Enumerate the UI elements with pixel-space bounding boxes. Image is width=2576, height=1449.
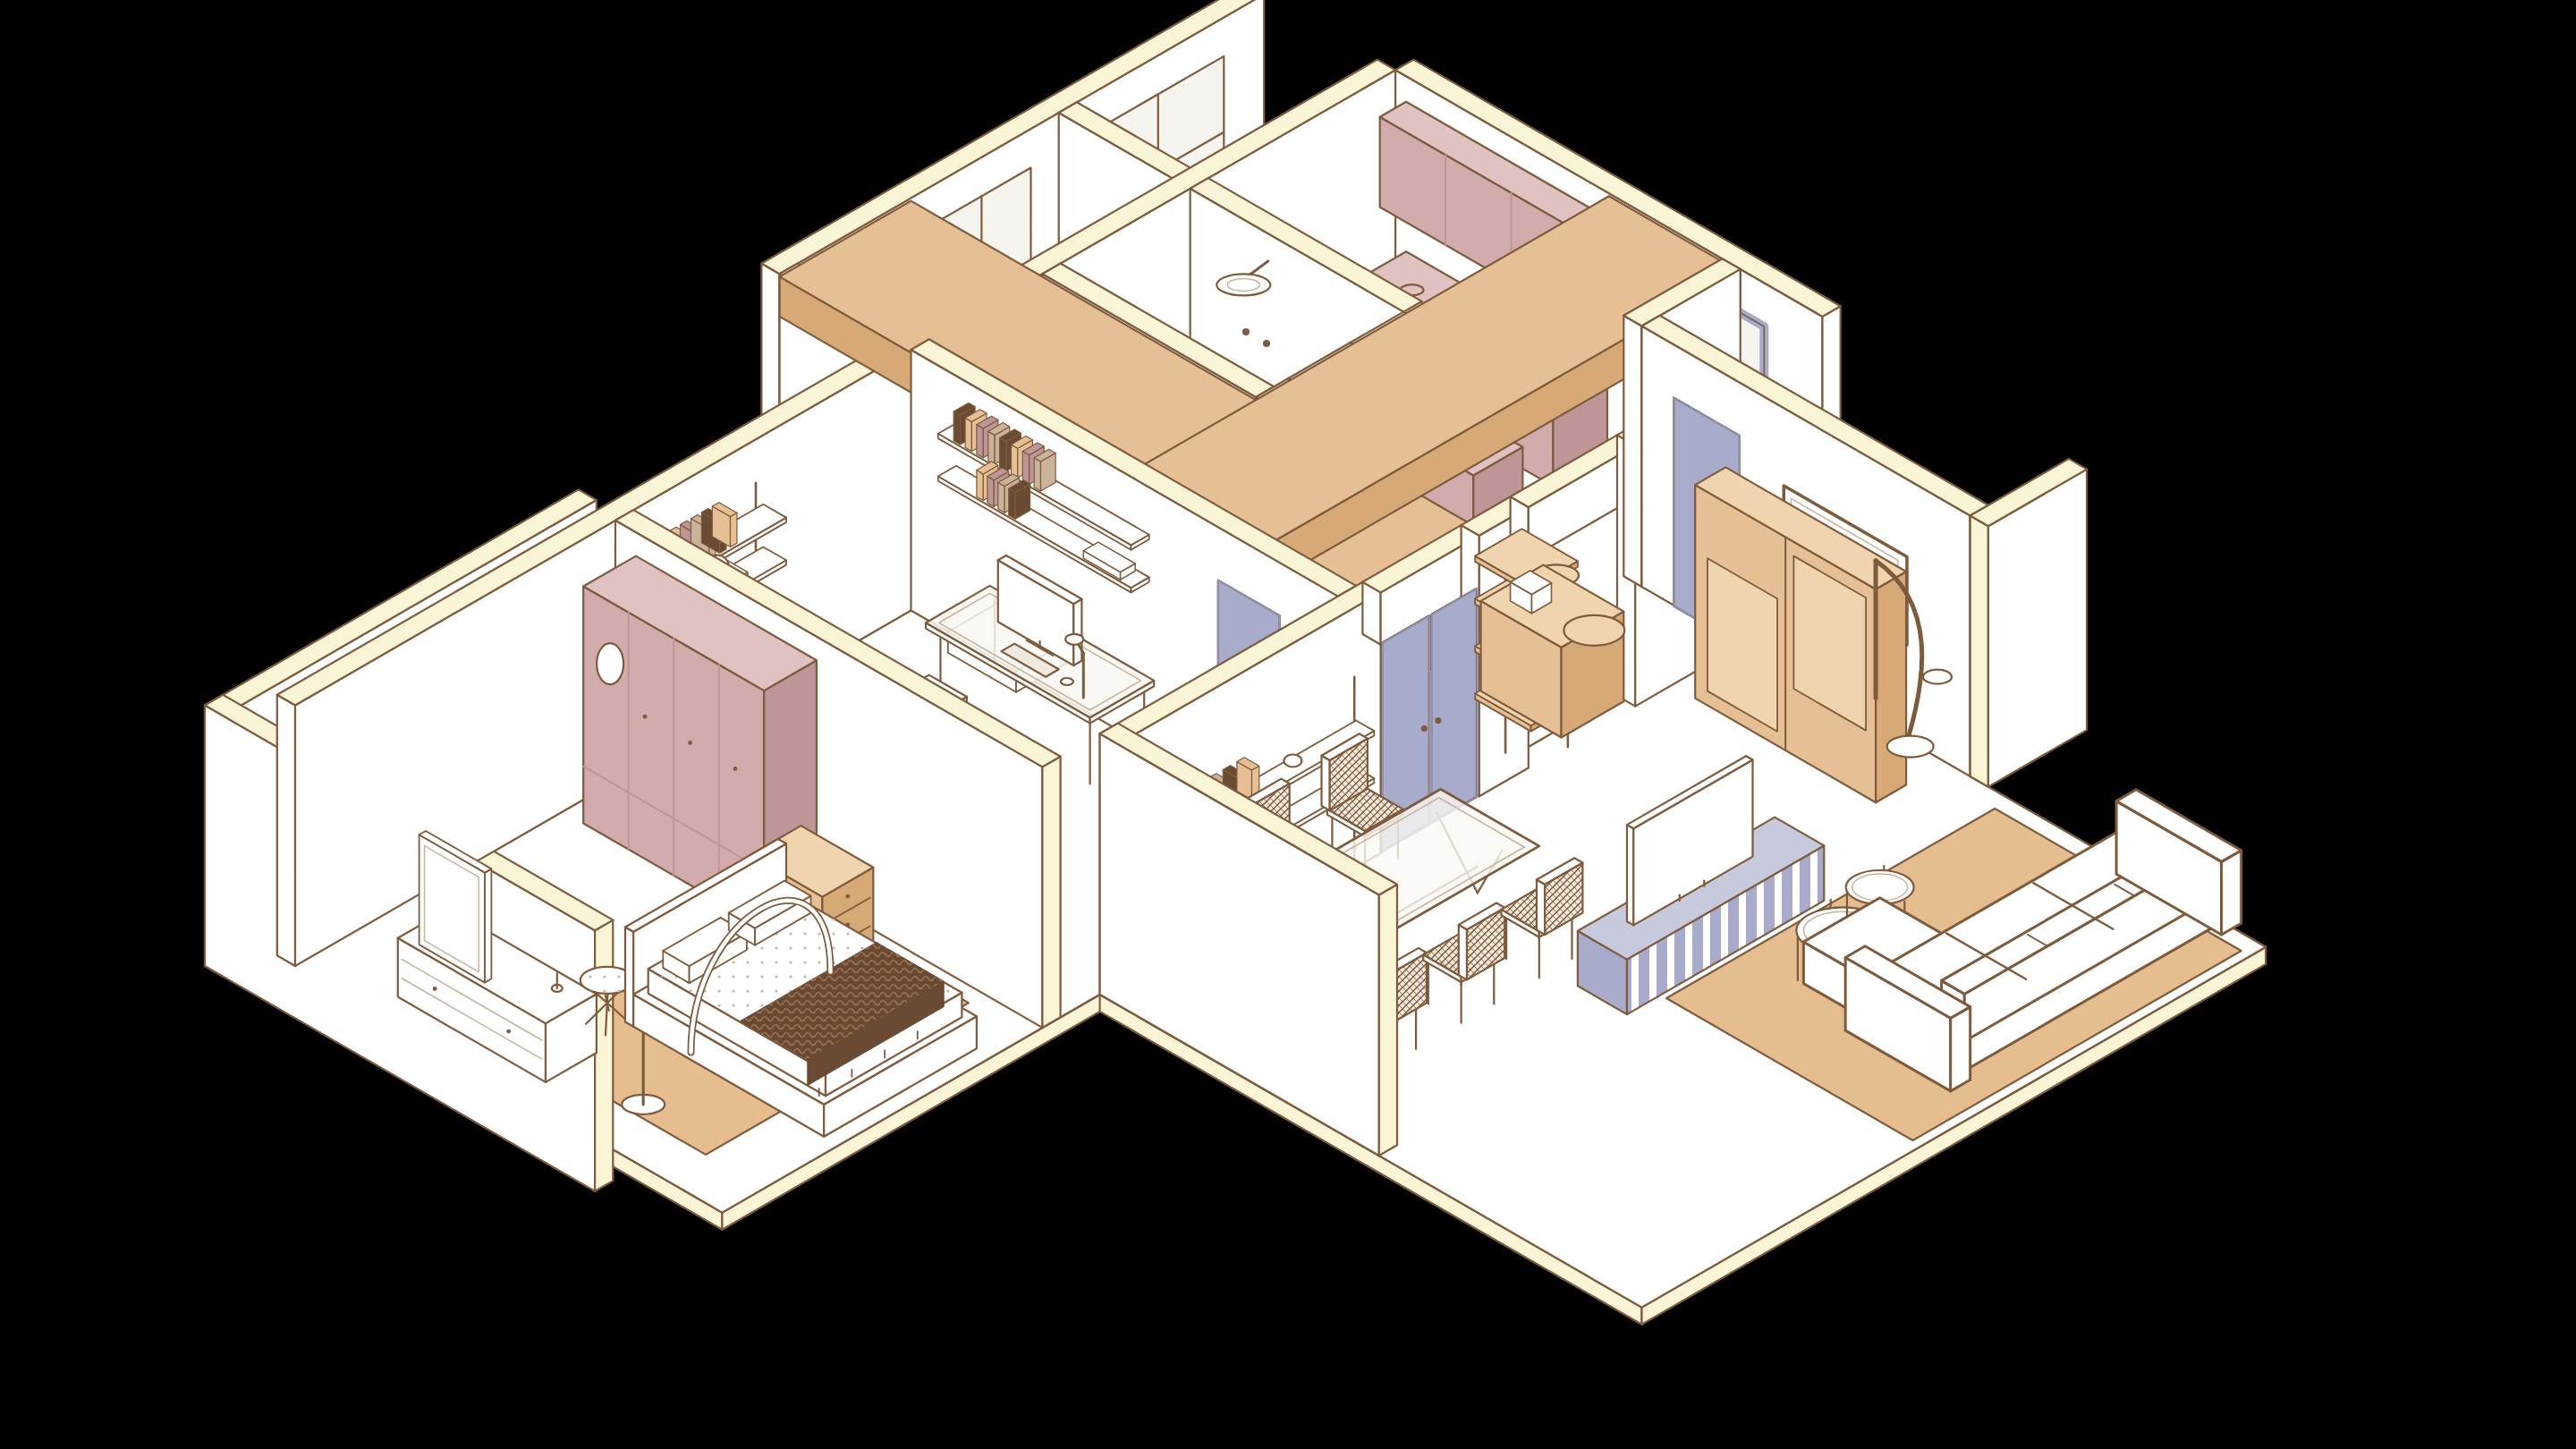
apartment-isometric-illustration [0,0,2576,1449]
floor-plan-canvas [0,0,2576,1449]
